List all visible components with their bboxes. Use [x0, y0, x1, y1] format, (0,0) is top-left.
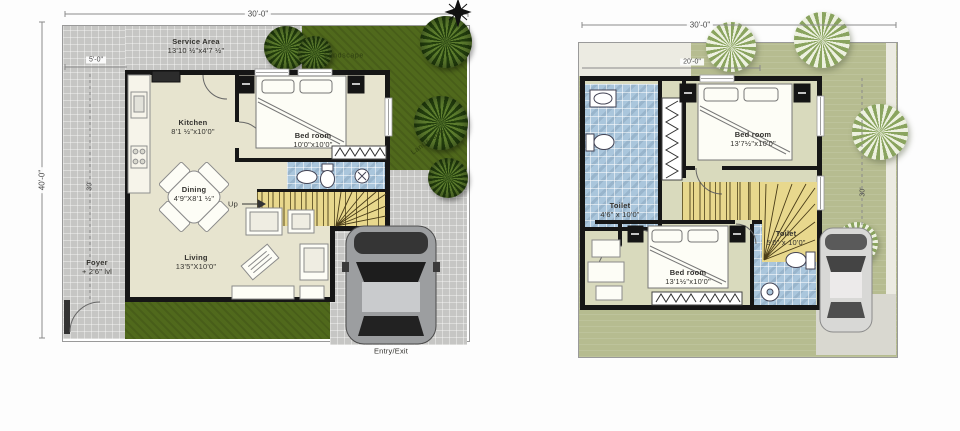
dimension-label: 30'-0"	[687, 21, 713, 30]
staircase-first	[682, 182, 762, 220]
foyer-label: Foyer + 2'6" lvl	[82, 258, 112, 276]
toilet-ground	[287, 160, 387, 192]
landscape-label: Landscape	[324, 53, 364, 60]
entry-exit-label: Entry/Exit	[374, 347, 408, 356]
bedroom-label: Bed room 10'0"x10'0"	[293, 131, 332, 149]
dimension-label: 20'-0"	[680, 59, 704, 66]
tree-icon	[706, 22, 756, 72]
tree-icon	[852, 104, 908, 160]
staircase-ground	[257, 192, 387, 226]
tree-icon	[836, 222, 878, 264]
dimension-label: 30'	[87, 181, 94, 190]
dimension-label: 30'-0"	[245, 10, 271, 19]
first-floor-plan	[480, 0, 960, 431]
bedroom-label: Bed room 13'7½"x10'0"	[730, 130, 776, 148]
floor-plan-sheet: 30'-0" 40'-0" 30' 5'-0" Service Area 13'…	[0, 0, 960, 431]
tree-icon	[794, 12, 850, 68]
ground-floor-plan	[0, 0, 480, 431]
dimension-label: 40'-0"	[38, 167, 47, 193]
tree-icon	[428, 158, 468, 198]
up-label: Up	[228, 200, 238, 209]
foyer-walkway	[63, 26, 125, 339]
dimension-label: 30'	[860, 187, 867, 196]
toilet-label: Toilet 4'6" x 10'0"	[600, 201, 639, 219]
service-area-label: Service Area 13'10 ½"x4'7 ½"	[168, 37, 225, 55]
bedroom-label: Bed room 13'1½"x10'0"	[665, 268, 711, 286]
tree-icon	[420, 16, 472, 68]
dining-label: Dining 4'9"X8'1 ½"	[174, 185, 214, 203]
kitchen-label: Kitchen 8'1 ½"x10'0"	[171, 118, 215, 136]
living-label: Living 13'5"X10'0"	[176, 253, 216, 271]
dimension-label: 5'-0"	[86, 57, 106, 64]
toilet-label: Toilet 5'0" x 10'0"	[766, 229, 805, 247]
terrace-strip	[579, 43, 691, 76]
car-pad	[816, 294, 896, 355]
lawn	[125, 302, 330, 339]
